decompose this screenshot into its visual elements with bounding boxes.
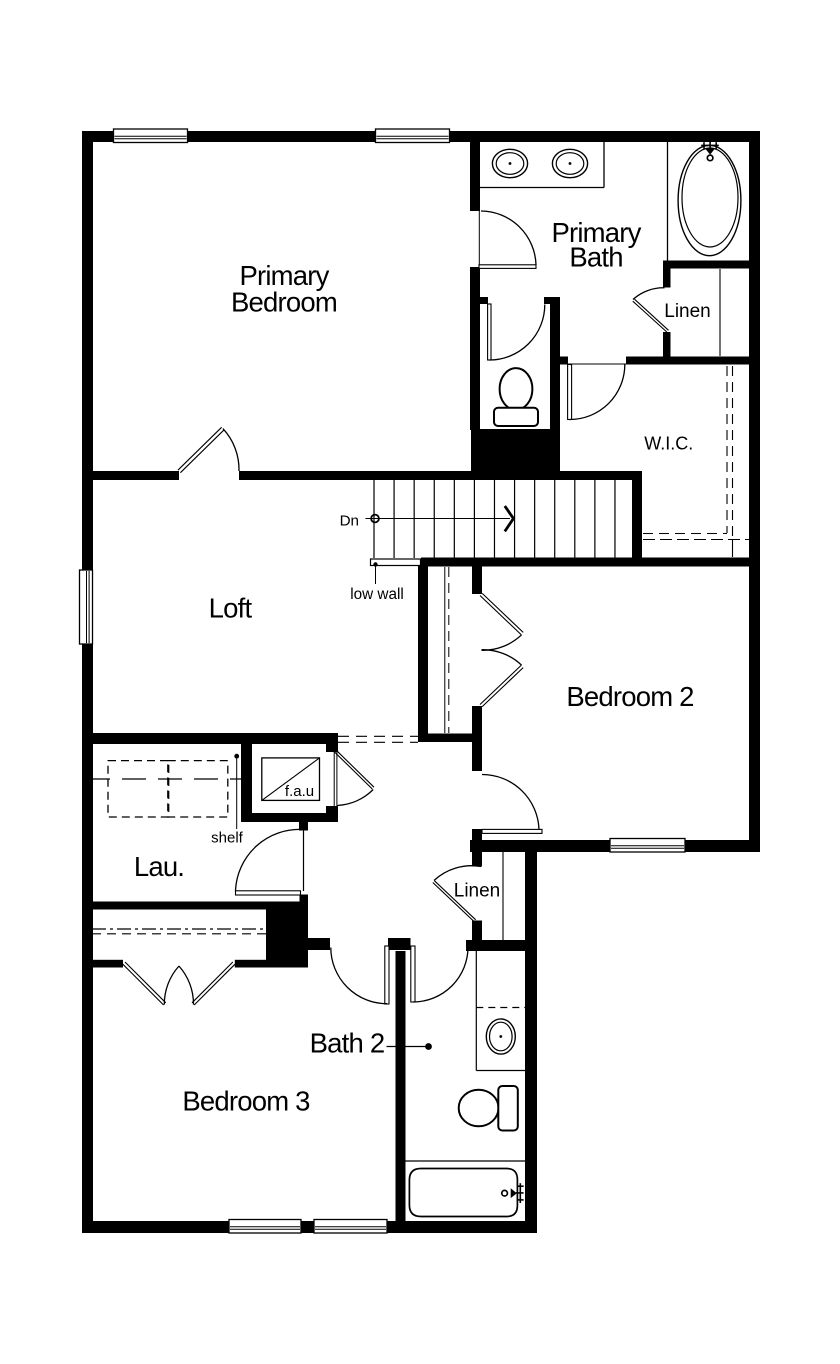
svg-text:Bedroom 2: Bedroom 2 <box>566 681 693 712</box>
svg-text:Bedroom: Bedroom <box>231 287 337 318</box>
svg-text:Dn: Dn <box>340 513 359 530</box>
svg-text:low wall: low wall <box>350 586 404 603</box>
svg-text:Bedroom 3: Bedroom 3 <box>182 1086 310 1117</box>
svg-text:Linen: Linen <box>454 881 501 902</box>
svg-text:Lau.: Lau. <box>134 851 184 882</box>
svg-text:Bath 2: Bath 2 <box>310 1028 385 1059</box>
svg-text:Linen: Linen <box>664 301 711 322</box>
svg-text:f.a.u: f.a.u <box>285 783 314 800</box>
svg-text:W.I.C.: W.I.C. <box>644 434 693 454</box>
svg-text:Loft: Loft <box>209 593 253 624</box>
svg-text:Bath: Bath <box>569 242 622 273</box>
svg-text:shelf: shelf <box>211 830 244 847</box>
